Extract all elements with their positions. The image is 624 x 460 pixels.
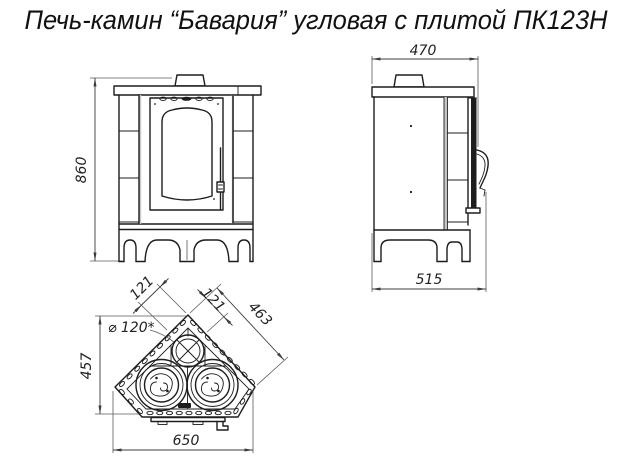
plan-edge-right-label: 121: [198, 285, 228, 315]
logo-plate: [178, 403, 191, 408]
plan-diagonal-label: 463: [245, 299, 275, 329]
plan-base-and-handle: [151, 418, 228, 431]
stove-door: [150, 98, 223, 210]
door-glass: [162, 108, 212, 200]
side-depth-label: 515: [416, 272, 443, 288]
side-width-label: 470: [410, 43, 437, 59]
side-door-handle: [477, 150, 488, 196]
drawing-canvas: Печь-камин “Бавария” угловая с плитой ПК…: [0, 0, 624, 460]
technical-drawing-sheet: Печь-камин “Бавария” угловая с плитой ПК…: [0, 0, 624, 460]
dimension-515: 515: [372, 192, 486, 292]
plan-depth-label: 457: [79, 353, 95, 380]
dimension-860: 860: [74, 78, 172, 261]
plan-view: 457 ⌀ 120* 650 121: [79, 273, 288, 453]
plan-edge-left-label: 121: [127, 273, 157, 303]
front-legs: [119, 230, 253, 262]
side-view: 470: [372, 43, 488, 292]
chimney-collar-front: [175, 75, 205, 86]
top-plate-side: [372, 87, 474, 97]
side-legs: [374, 230, 470, 262]
flue-diameter-label: ⌀ 120*: [108, 320, 155, 336]
drawing-title: Печь-камин “Бавария” угловая с плитой ПК…: [25, 5, 608, 35]
tile-column-right: [232, 95, 253, 224]
plan-width-label: 650: [173, 433, 200, 449]
front-height-label: 860: [74, 157, 90, 184]
side-body: [374, 97, 472, 230]
front-view: 860: [74, 75, 261, 262]
tile-column-left: [119, 95, 141, 224]
top-plate-front: [114, 86, 261, 95]
side-tile-column: [447, 98, 468, 225]
chimney-collar-side: [394, 75, 424, 87]
